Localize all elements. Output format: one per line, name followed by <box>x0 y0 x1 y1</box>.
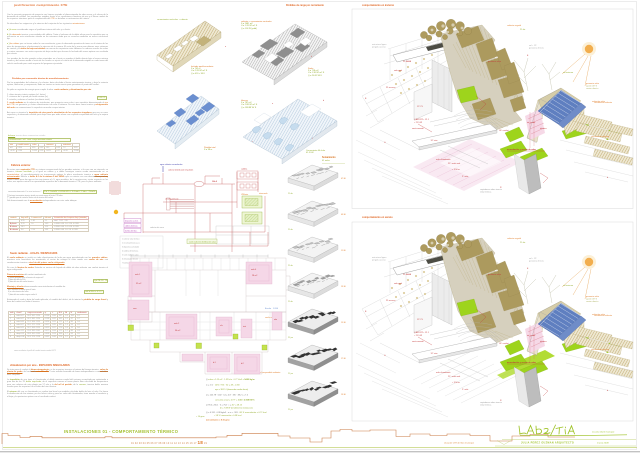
svg-text:cesion directa: cesion directa <box>586 87 599 90</box>
svg-text:32 m2: 32 m2 <box>136 283 141 285</box>
svg-text:aps = 38.15 l (demanda media d: aps = 38.15 l (demanda media diaria) <box>215 389 249 391</box>
svg-text:21 jun: 21 jun <box>288 409 293 411</box>
svg-text:aula climatizada: aula climatizada <box>436 158 451 161</box>
svg-text:Q APORT.+ 12.1: Q APORT.+ 12.1 <box>414 118 430 121</box>
svg-text:+ 3.50 m: + 3.50 m <box>452 169 460 171</box>
svg-text:19:30: 19:30 <box>341 394 346 396</box>
svg-text:estructura ligera: estructura ligera <box>372 43 387 46</box>
svg-text:Q instalación = 8.16 gran: Q instalación = 8.16 gran <box>206 419 230 422</box>
svg-text:15:30: 15:30 <box>341 322 346 324</box>
svg-text:acumulación y cesión de calor: acumulación y cesión de calor <box>507 149 536 151</box>
svg-text:situación CTE del foro municip: situación CTE del foro municipal <box>444 442 474 445</box>
svg-text:2° aula: 2° aula <box>462 176 469 178</box>
svg-text:k: k <box>311 56 312 58</box>
svg-text:21 dic: 21 dic <box>288 229 293 231</box>
svg-text:07:30: 07:30 <box>341 178 346 180</box>
svg-text:28 m2: 28 m2 <box>252 275 257 277</box>
svg-text:sala ppal: sala ppal <box>394 70 403 72</box>
svg-text:aporte 48° K: aporte 48° K <box>586 85 598 88</box>
svg-text:21 jun: 21 jun <box>288 337 293 339</box>
svg-text:térmico: térmico <box>540 127 547 130</box>
svg-text:d-1: d-1 <box>213 362 216 364</box>
svg-text:09:30: 09:30 <box>341 214 346 216</box>
svg-text:21 dic: 21 dic <box>288 301 293 303</box>
svg-text:d: d <box>323 100 324 102</box>
svg-text:13:30: 13:30 <box>341 286 346 288</box>
svg-text:Q = 125.78 · 0.82 · 14 = 4.8 ·: Q = 125.78 · 0.82 · 14 = 4.8 · 190 · 38.… <box>206 395 249 397</box>
svg-text:36 m2: 36 m2 <box>175 330 180 332</box>
svg-text:1 colector solar termico: 1 colector solar termico <box>122 238 140 241</box>
svg-text:aula 1: aula 1 <box>135 274 140 276</box>
svg-text:consumo anual = 0.97° = 1.05 ×: consumo anual = 0.97° = 1.05 × 2.958 kW·… <box>215 399 255 402</box>
svg-text:e: e <box>225 46 227 48</box>
svg-text:cerramiento aislante: cerramiento aislante <box>594 101 613 104</box>
svg-text:d-2: d-2 <box>241 363 244 365</box>
svg-text:int. verde: int. verde <box>527 121 536 124</box>
svg-text:vista térmica: vista térmica <box>480 191 492 194</box>
svg-text:2 circuito primario aa.cc: 2 circuito primario aa.cc <box>122 242 140 245</box>
svg-text:marzo 2008: marzo 2008 <box>597 441 609 444</box>
svg-text:caldera: caldera <box>241 168 248 171</box>
svg-text:a: a <box>272 103 274 105</box>
svg-text:JULIA PEREZ GUZMAN ARQUITECTO: JULIA PEREZ GUZMAN ARQUITECTO <box>521 441 574 444</box>
svg-text:colector distribución impulsió: colector distribución impulsión <box>168 169 193 172</box>
svg-text:suelo radiante distribución au: suelo radiante distribución aulas <box>189 240 216 243</box>
svg-text:UTA aire: UTA aire <box>241 193 248 196</box>
svg-text:aula 4: aula 4 <box>251 269 256 271</box>
svg-text:pergola acceso: pergola acceso <box>372 47 386 49</box>
svg-text:ganancia solar: ganancia solar <box>488 61 501 63</box>
svg-text:12° PL: 12° PL <box>417 106 424 108</box>
svg-text:4 caldera de biomasa: 4 caldera de biomasa <box>122 250 138 253</box>
svg-text:bomba distribuc.: bomba distribuc. <box>125 230 138 233</box>
svg-text:agua caliente acumulación: agua caliente acumulación <box>160 163 182 166</box>
svg-text:21 dic: 21 dic <box>288 193 293 195</box>
svg-text:ganancia directa: ganancia directa <box>529 47 545 50</box>
svg-text:inst: inst <box>243 325 246 328</box>
svg-text:sol invierno: sol invierno <box>563 72 574 74</box>
svg-text:3 deposito acumulador: 3 deposito acumulador <box>122 246 140 249</box>
svg-text:21 jun: 21 jun <box>288 373 293 375</box>
svg-text:17:30: 17:30 <box>341 358 346 360</box>
svg-text:w = 2 m · 1070 / 753 · 62 = 48: w = 2 m · 1070 / 753 · 62 = 48 + 0.35 l <box>206 385 241 387</box>
svg-text:21° suelo rad.: 21° suelo rad. <box>448 163 461 165</box>
svg-text:vent.cruzada: vent.cruzada <box>412 127 424 130</box>
svg-text:c: c <box>252 141 253 143</box>
svg-text:+ 10 gran: + 10 gran <box>196 416 205 418</box>
svg-text:circuito primario: circuito primario <box>165 198 178 201</box>
svg-text:+ 58° K renovación = 0.58 kcal: + 58° K renovación = 0.58 kcal <box>214 415 242 417</box>
svg-text:18° confort: 18° confort <box>499 129 509 132</box>
svg-text:PL.BAJA: PL.BAJA <box>403 60 412 63</box>
svg-text:Q = 0.131 · 0.38 kg/m² · w = s: Q = 0.131 · 0.38 kg/m² · w = s · 981 · 6… <box>206 411 267 414</box>
svg-text:Q 78.5 = 80.1 · h = 754 · ϵ =: Q 78.5 = 80.1 · h = 754 · ϵ = 40° = 28.1… <box>206 405 243 407</box>
svg-text:colector de zona: colector de zona <box>150 226 165 229</box>
svg-text:cerramiento aislante: cerramiento aislante <box>591 135 610 138</box>
svg-text:serv: serv <box>133 307 137 310</box>
svg-text:s.b.: s.b. <box>220 325 224 327</box>
svg-text:11:30: 11:30 <box>341 250 346 252</box>
svg-text:caldera biomasa: caldera biomasa <box>125 225 137 228</box>
svg-text:intercamb.: intercamb. <box>259 192 268 195</box>
svg-text:SALA: SALA <box>212 180 218 183</box>
svg-text:cubierta vegetal: cubierta vegetal <box>507 24 522 27</box>
svg-text:21 dic: 21 dic <box>288 265 293 267</box>
svg-text:+ 21.5 W: + 21.5 W <box>414 122 422 124</box>
svg-text:PL.acceso: PL.acceso <box>386 87 396 89</box>
svg-text:dep.solar acumul.: dep.solar acumul. <box>125 220 139 223</box>
svg-text:12° aire: 12° aire <box>430 140 438 142</box>
svg-text:alm: alm <box>274 319 277 321</box>
svg-text:captadores sobre inercia: captadores sobre inercia <box>480 188 503 191</box>
svg-text:aula 2: aula 2 <box>174 323 179 325</box>
svg-text:Q aulas = 5.15 m2 · 1.32 k/m ·: Q aulas = 5.15 m2 · 1.32 k/m · 0.77 h/m²… <box>206 378 255 381</box>
svg-text:dt = 7.88 W (rendimiento insta: dt = 7.88 W (rendimiento instalacion) <box>220 406 253 409</box>
svg-text:escuela infantil municipal: escuela infantil municipal <box>592 431 615 434</box>
svg-text:21 dic: 21 dic <box>520 29 525 31</box>
